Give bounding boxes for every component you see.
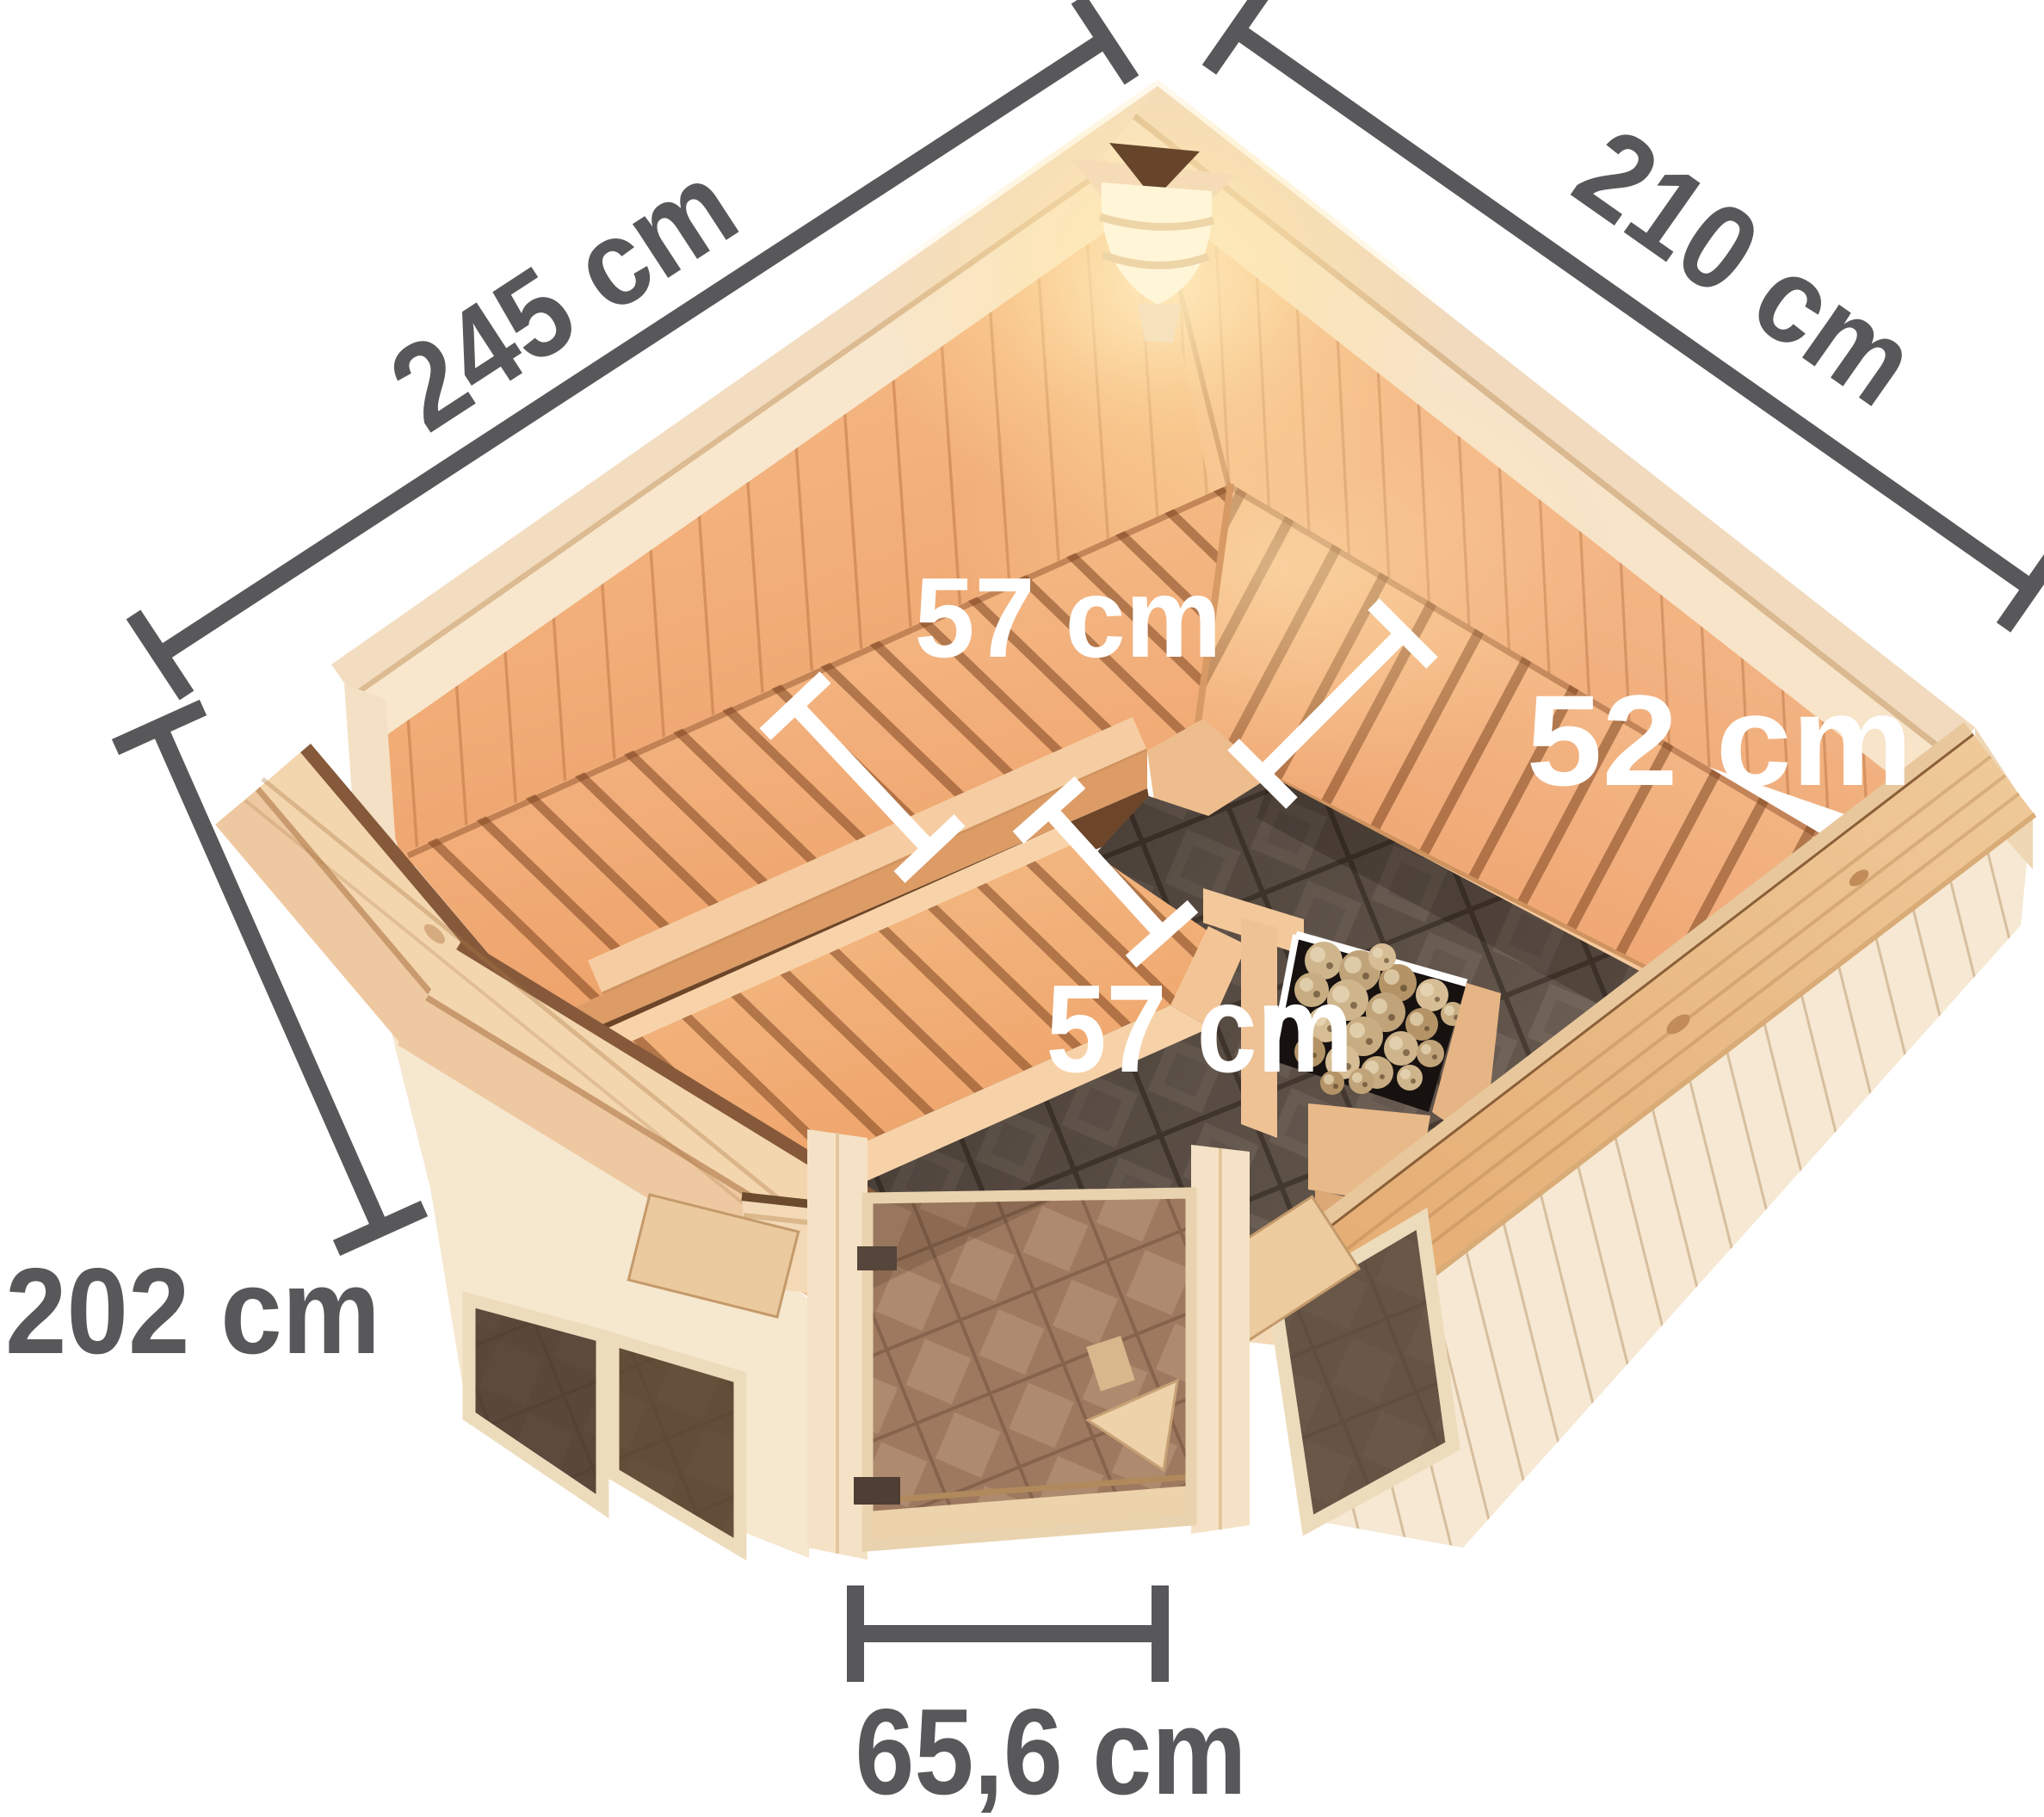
svg-text:52 cm: 52 cm — [1527, 668, 1913, 813]
svg-text:57 cm: 57 cm — [1047, 959, 1354, 1098]
svg-text:202 cm: 202 cm — [5, 1243, 380, 1380]
svg-text:57 cm: 57 cm — [915, 554, 1222, 681]
svg-text:65,6 cm: 65,6 cm — [855, 1684, 1247, 1817]
